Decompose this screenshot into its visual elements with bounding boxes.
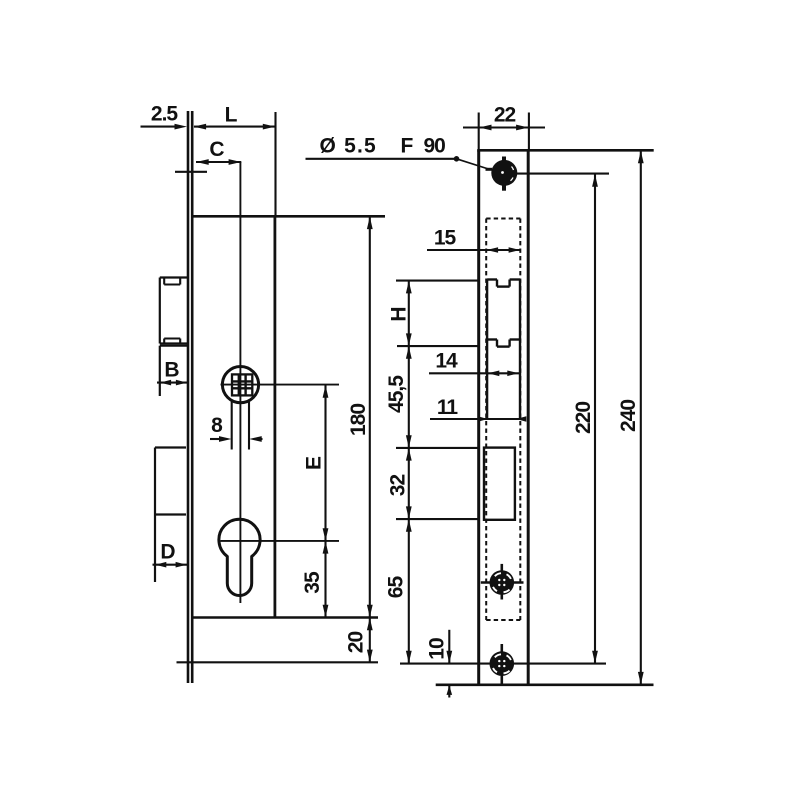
svg-text:8: 8 <box>211 414 223 437</box>
svg-text:C: C <box>209 138 224 161</box>
svg-text:65: 65 <box>384 576 407 599</box>
svg-text:E: E <box>302 456 325 470</box>
svg-text:220: 220 <box>572 402 595 434</box>
svg-text:F: F <box>401 135 414 158</box>
svg-text:90: 90 <box>424 135 446 158</box>
svg-text:Ø 5.5: Ø 5.5 <box>320 135 377 158</box>
svg-text:H: H <box>387 307 410 321</box>
svg-text:35: 35 <box>301 571 324 594</box>
svg-text:L: L <box>225 103 238 126</box>
svg-text:180: 180 <box>347 404 370 436</box>
svg-text:15: 15 <box>434 227 457 250</box>
svg-text:B: B <box>164 359 179 382</box>
svg-text:D: D <box>160 540 175 563</box>
svg-text:14: 14 <box>435 350 458 373</box>
svg-text:2.5: 2.5 <box>151 103 179 126</box>
svg-text:22: 22 <box>494 104 516 127</box>
svg-text:240: 240 <box>617 400 640 432</box>
svg-text:45,5: 45,5 <box>385 375 408 413</box>
svg-text:20: 20 <box>344 632 367 654</box>
svg-text:32: 32 <box>386 475 409 497</box>
svg-text:10: 10 <box>426 638 449 660</box>
svg-text:11: 11 <box>437 396 459 419</box>
